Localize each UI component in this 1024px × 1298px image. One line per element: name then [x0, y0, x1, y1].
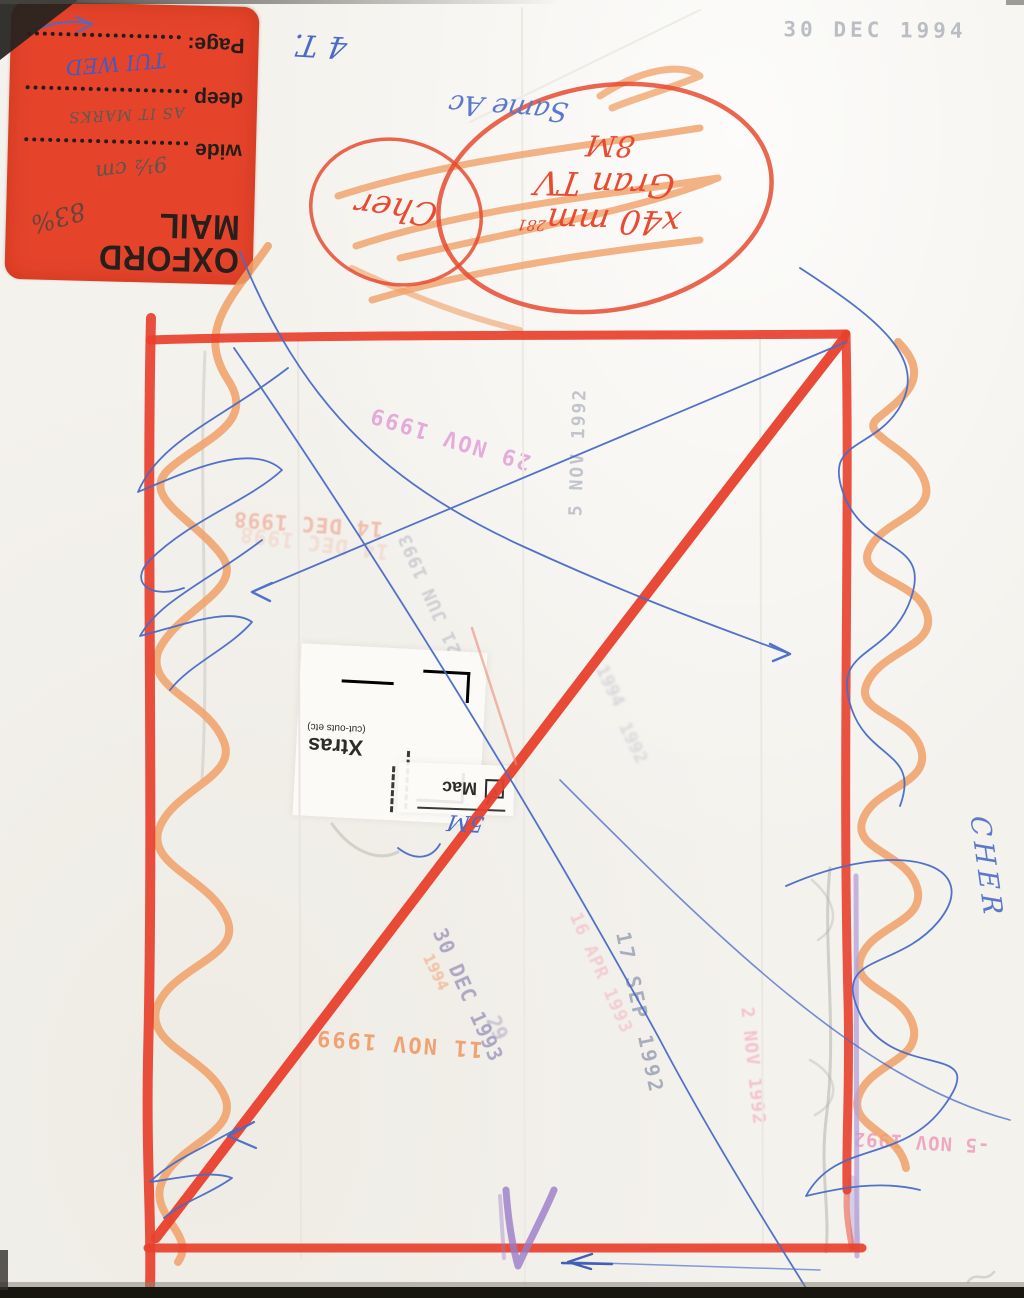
mac-label: Mac: [442, 777, 478, 799]
blue-left-loops: [150, 1128, 238, 1218]
frame-top: [150, 334, 846, 340]
dotted-line: [25, 85, 187, 95]
frame-right: [846, 334, 849, 1190]
sticker-field-page: TUI WED Page:: [24, 27, 245, 57]
photo-back-scan: 30 DEC 1994 29 NOV 1999 5 NOV 1992 14 DE…: [0, 0, 1024, 1298]
wide-label: wide: [195, 138, 242, 163]
frame-right-faint: [847, 1190, 852, 1248]
date-stamp: 11 NOV 1999: [314, 1025, 483, 1062]
orange-right-zigzag: [857, 342, 928, 1168]
corner-note: 4 T.: [269, 25, 371, 65]
frame-bottom: [148, 1247, 862, 1248]
purple-v-stroke: [506, 1190, 554, 1266]
lavender-vertical: [856, 876, 857, 1256]
size-note-line2: Gran TV: [532, 163, 677, 206]
sticker-brand: OXFORD MAIL: [98, 207, 240, 277]
lavender-smudge: [852, 1180, 856, 1244]
chevron-left-icon: [228, 1122, 256, 1148]
sticker-field-wide: 9½ cm wide: [22, 133, 243, 163]
tick-icon: ✓: [478, 779, 504, 813]
page-label: Page:: [187, 31, 245, 56]
dotted-line: [27, 31, 181, 41]
purple-check-mark: [500, 1190, 554, 1266]
date-stamp: 5 NOV 1992: [565, 387, 590, 516]
date-stamp-fragment: 1992: [614, 719, 652, 767]
scan-edge: [0, 0, 560, 4]
percent-note: 83%: [28, 196, 89, 239]
crop-mark-icon: [342, 679, 394, 685]
sticker-field-deep: AS IT MARKS deep: [23, 81, 244, 111]
date-stamp: -5 NOV 1992: [852, 1127, 990, 1156]
crop-mark-icon: [422, 670, 471, 703]
date-stamp: 29 NOV 1999: [366, 402, 534, 475]
dotted-line: [24, 137, 188, 147]
deep-value: AS IT MARKS: [68, 103, 185, 126]
orange-scratch: [372, 240, 700, 300]
deep-label: deep: [194, 86, 244, 111]
blue-right-loops: [800, 268, 915, 806]
size-note: x40 mm281 Gran TV 8M: [484, 125, 727, 242]
xtras-label-text: Xtras (cut-outs etc): [306, 721, 366, 761]
page-value: TUI WED: [65, 48, 167, 80]
oxford-mail-sticker: OXFORD MAIL 83% 9½ cm wide AS IT MARKS d…: [4, 1, 259, 285]
blue-note: Same Ac: [407, 85, 609, 130]
pencil-stroke: [810, 880, 833, 1115]
scan-edge: [1006, 0, 1024, 5]
scan-edge: [0, 1287, 1024, 1298]
arrowhead-icon: [770, 644, 790, 661]
pencil-stroke: [332, 824, 398, 856]
crop-mark-icon: [390, 766, 395, 812]
arrowhead-icon: [562, 1254, 612, 1269]
date-stamp-fragment: 1994: [591, 662, 629, 710]
date-stamp: 21 JUN 1993: [394, 530, 466, 658]
date-stamp: 30 DEC 1994: [783, 17, 966, 43]
orange-scratch: [352, 268, 520, 330]
orange-left-wave: [155, 246, 268, 1262]
date-stamp: 2 NOV 1992: [736, 1006, 769, 1126]
blue-left-loops: [138, 368, 288, 592]
wide-value: 9½ cm: [94, 151, 169, 184]
arrowhead-icon: [252, 583, 272, 601]
pencil-stroke: [202, 352, 205, 780]
purple-v-fuzz: [500, 1196, 504, 1258]
blue-left-loops: [140, 540, 262, 690]
mac-checkbox-slip: ✓ Mac: [397, 762, 515, 816]
subject-margin-note: CHER: [960, 786, 1013, 949]
size-note-line1: x40 mm: [544, 200, 683, 242]
size-note-line3: 8M: [584, 129, 637, 164]
lavender-marker-line: [852, 876, 857, 1256]
orange-scratch: [600, 69, 700, 108]
xtras-title: Xtras: [306, 732, 366, 761]
blue-small-curve: [398, 844, 440, 857]
pencil-squiggle: [968, 1272, 994, 1282]
mac-size-note: 5M: [435, 808, 496, 836]
blue-bottom-line: [568, 1262, 820, 1270]
scan-edge: [0, 1250, 8, 1290]
orange-crayon-scribbles: [155, 69, 928, 1262]
pencil-stroke: [824, 868, 831, 1252]
blue-long-diagonal: [234, 348, 806, 1288]
size-note-ref: 281: [516, 216, 547, 235]
subject-circled-note: Cher: [314, 179, 478, 240]
frame-left: [148, 318, 151, 1286]
